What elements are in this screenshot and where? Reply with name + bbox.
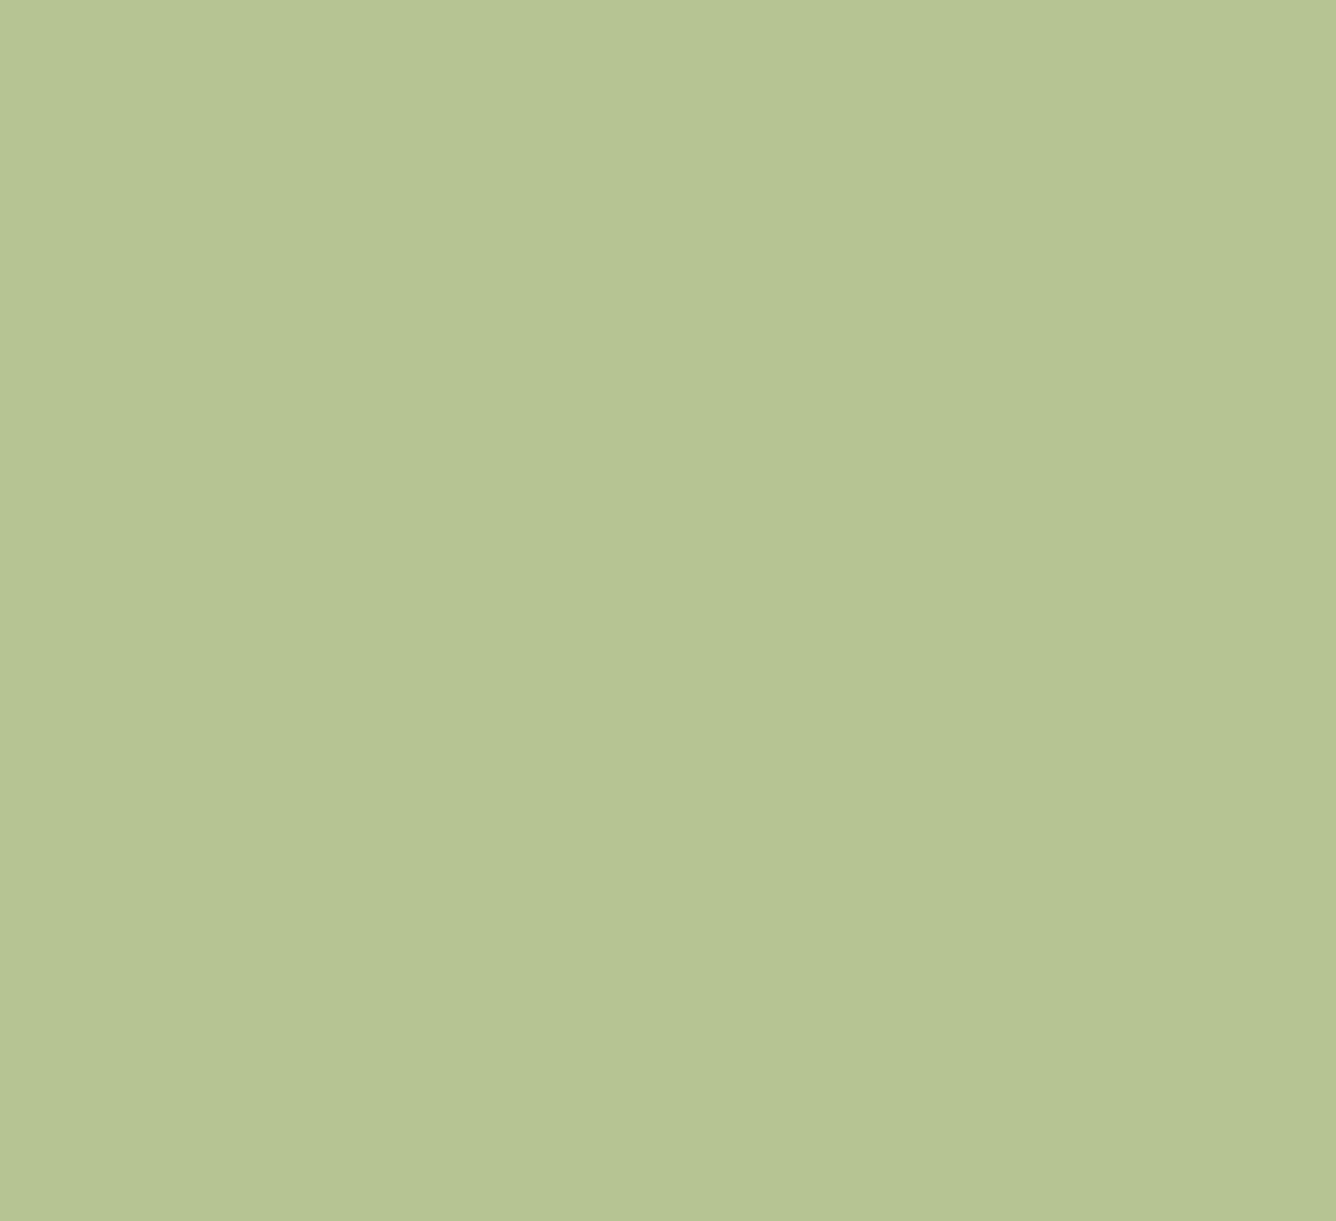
map-canvas (0, 0, 1336, 1221)
wargame-map-screenshot (0, 0, 1336, 1221)
